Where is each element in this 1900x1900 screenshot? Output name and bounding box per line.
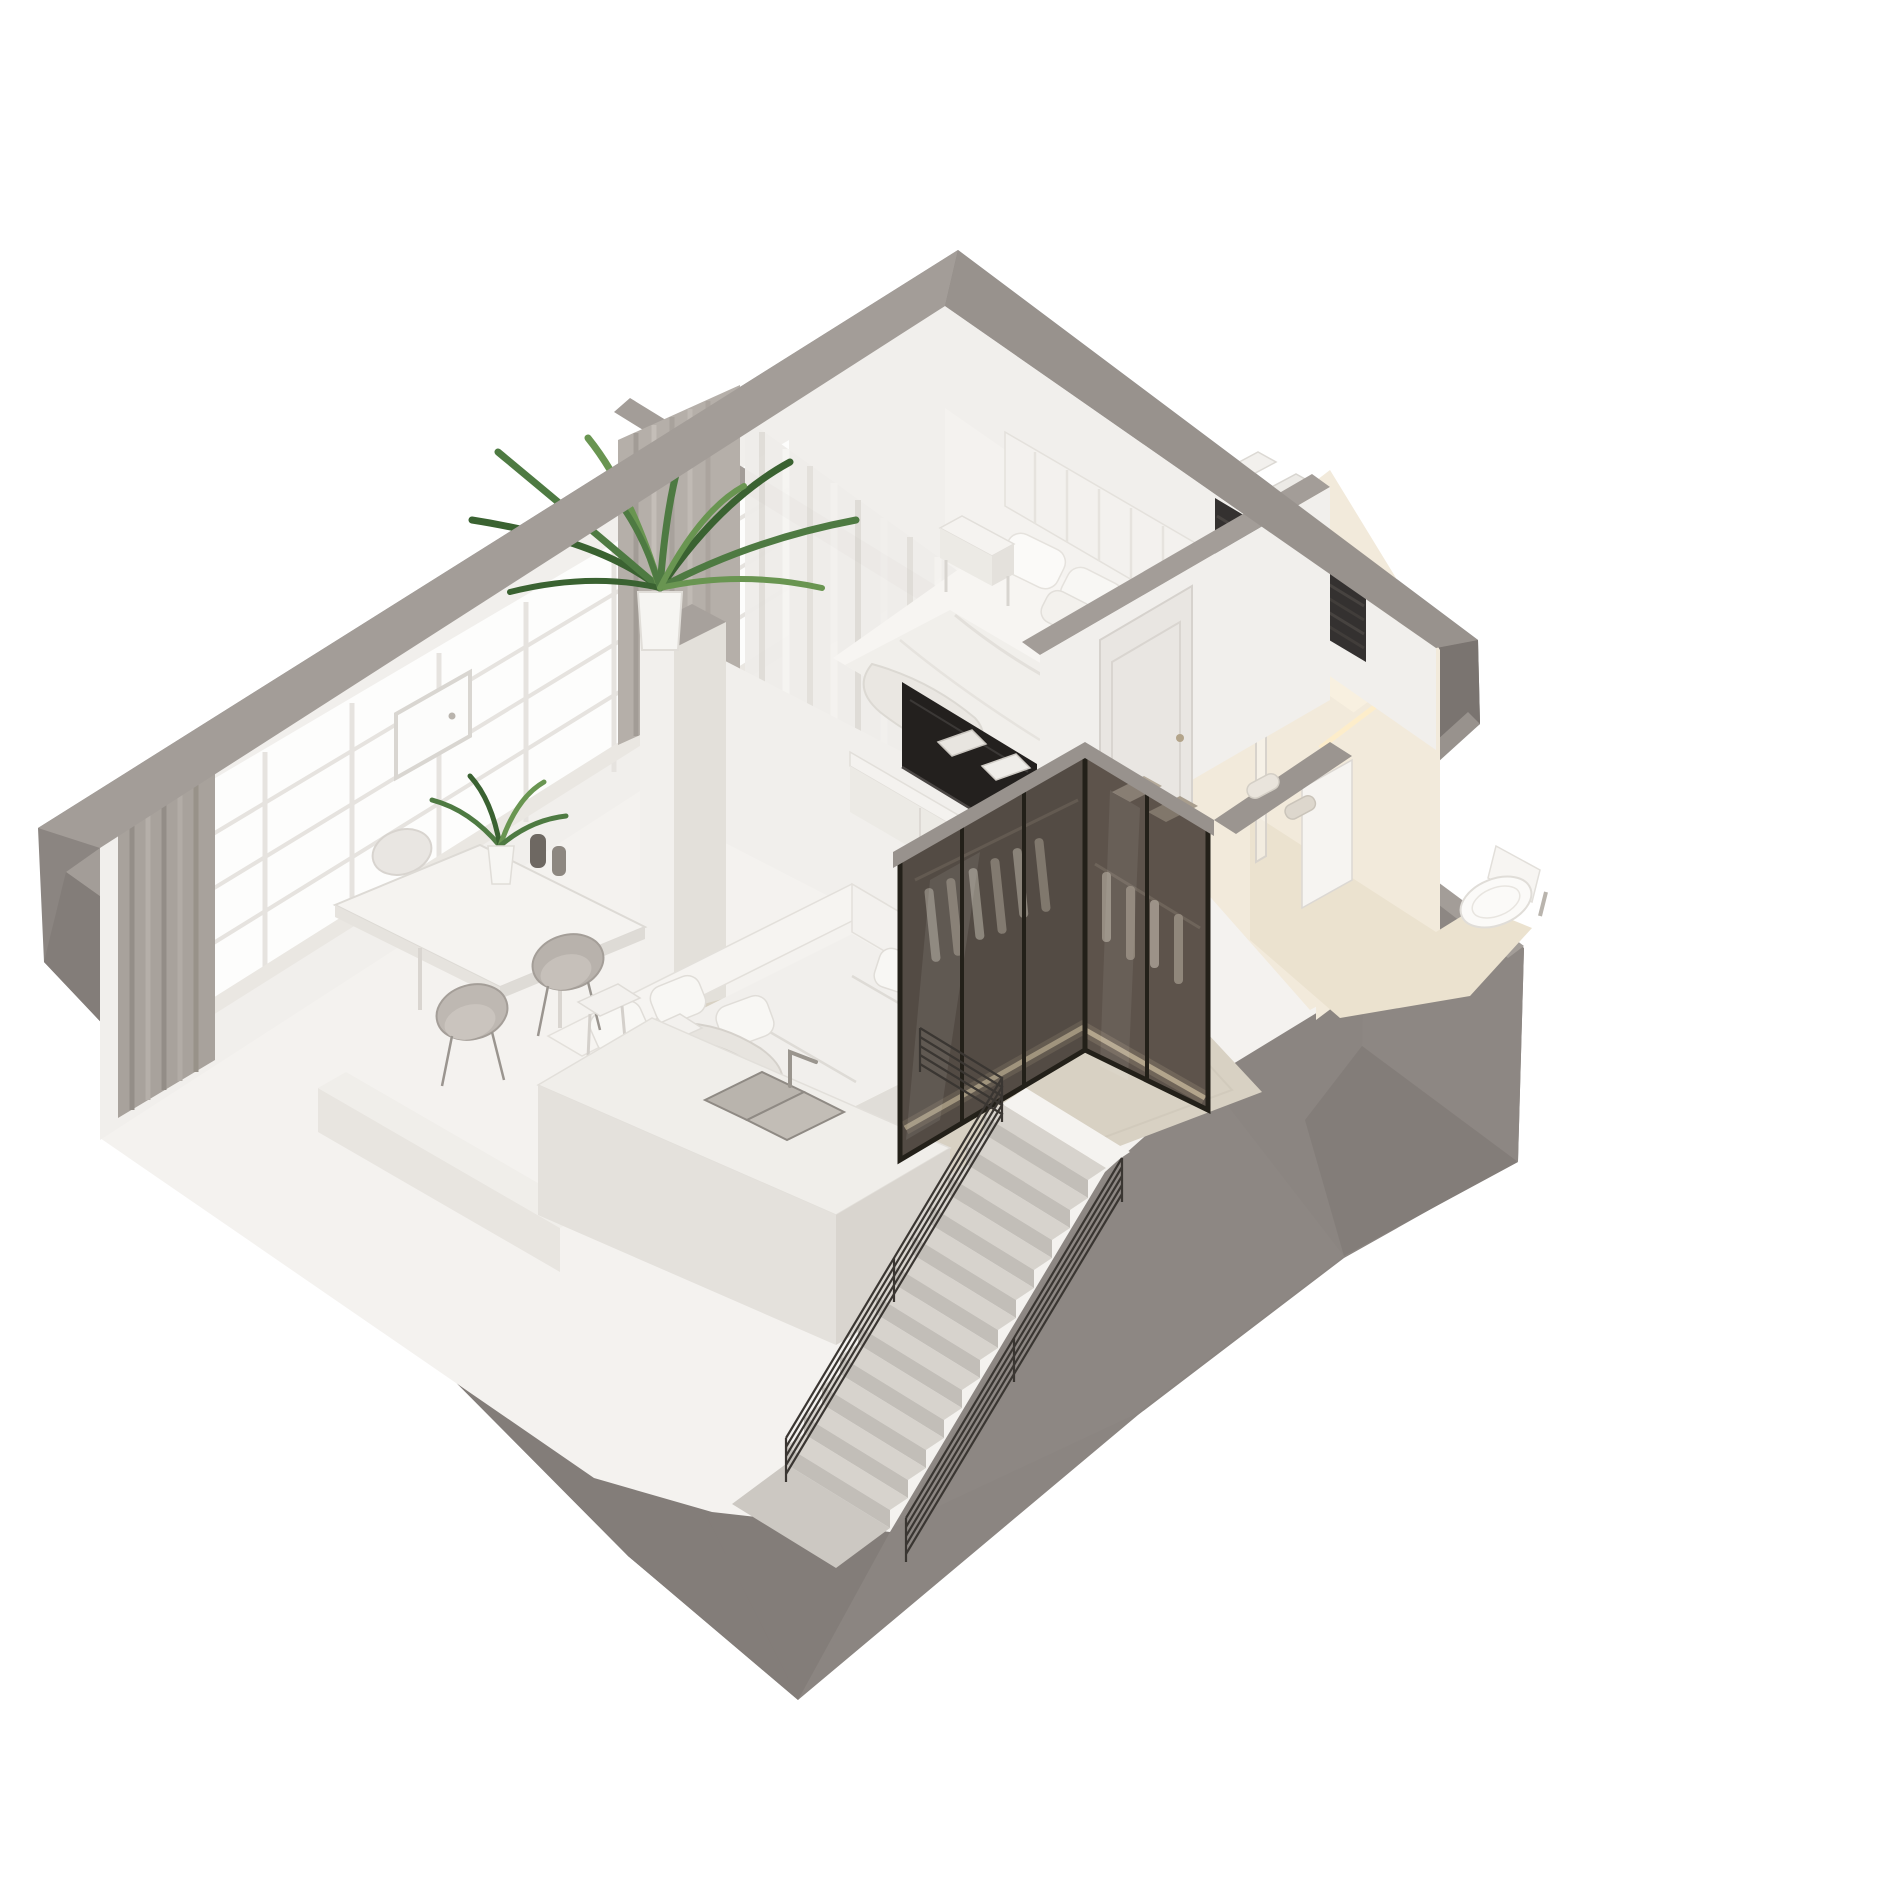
stool-leg	[588, 1014, 590, 1058]
deco-vase	[530, 834, 546, 868]
render-canvas	[0, 0, 1900, 1900]
plant-pot	[638, 592, 682, 650]
isometric-floor-plan	[0, 0, 1900, 1900]
deco-vase	[552, 846, 566, 876]
door-handle	[1176, 734, 1184, 742]
bidet-sprayer	[1540, 892, 1546, 916]
plant-vase	[488, 846, 514, 884]
sash-handle	[449, 713, 456, 720]
